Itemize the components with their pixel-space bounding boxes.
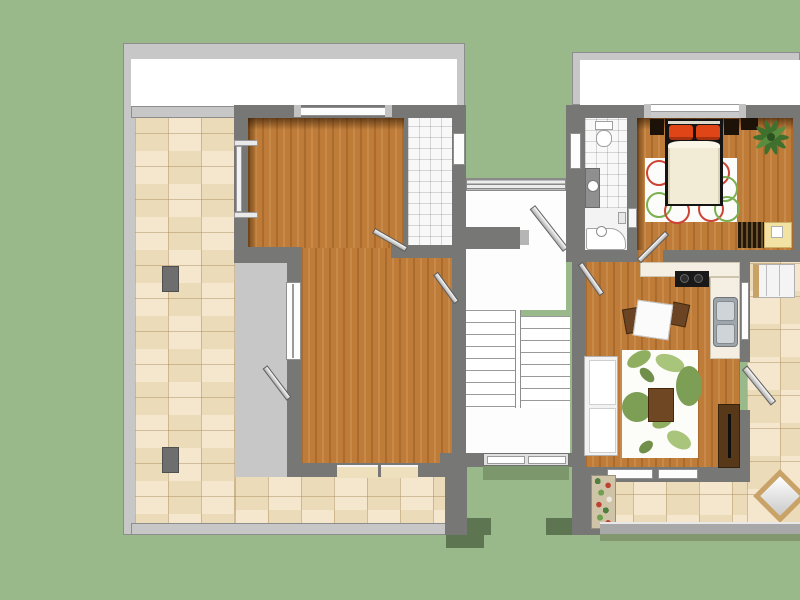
shower-drain [596,226,607,237]
potted-plant [752,120,790,154]
window-frame-cap [739,104,746,118]
floor-shadow [248,118,257,248]
wall-bathroom-right [627,118,637,262]
bedroom-window [650,104,740,112]
wall-bedroom-bottom [578,250,800,262]
lounger-seam [779,265,780,296]
sink-basin [716,324,735,344]
left-main-room-floor [301,248,452,463]
pillow [669,125,693,140]
headboard-trim [668,121,720,124]
lower-landing [466,408,570,453]
bathroom-fixture [618,212,626,224]
window-frame-cap [385,105,392,117]
terrace-parapet-bottom [131,523,450,535]
wall-right-apartment-left [566,105,585,262]
terrace-parapet-right [600,522,800,534]
plant-center [767,133,775,141]
upper-landing [466,191,566,310]
mat-box [771,226,783,238]
wall-bathroom-divider [404,118,408,248]
pillow [696,125,720,140]
wall-stub-cap [520,230,529,245]
duvet [668,148,720,204]
cabinet-item [728,414,731,458]
floor-plan [0,0,800,600]
window-top-room [300,107,386,116]
window-frame-cap [294,105,301,117]
coffee-table [648,388,674,422]
kitchen-window [741,282,749,340]
sun-lounger [753,264,795,298]
left-bathroom-floor [408,118,452,248]
wall-shadow [446,535,484,548]
left-top-room-floor [248,118,405,248]
sofa-cushion [589,408,616,453]
window-sill [234,212,258,218]
washbasin [587,180,599,192]
landing-wall-stub [466,227,520,249]
toilet-bowl [596,130,612,147]
living-window [658,469,698,479]
nightstand-right [724,119,739,135]
radiator [738,222,764,248]
right-roof-band [580,60,800,105]
terrace-pillar [162,447,179,473]
wall-entrance-left [440,453,483,467]
window-left-wall [236,146,242,212]
wall-living-right [740,410,750,467]
floor-shadow [637,118,645,250]
left-roof-band [131,59,457,106]
bridge-railing [466,178,566,191]
window-sill [234,140,258,146]
parapet-shadow [600,534,800,541]
wall-shadow [467,518,491,535]
rug-leaf [676,366,702,406]
entrance-shadow [483,466,569,480]
sink-basin [716,301,735,321]
bedroom-window-sill [650,112,740,118]
burner [680,274,689,283]
terrace-pillar [162,266,179,292]
dining-table [633,300,674,341]
wall-shadow [546,518,572,535]
window-frame-cap [644,104,651,118]
wall-jog [234,247,302,263]
terrace-threshold [337,465,378,478]
terrace-parapet-top [131,106,238,118]
stair-flight-right [521,316,570,408]
nightstand-left [650,119,664,135]
wall-bedroom-right [793,105,800,250]
bathroom-door [628,208,637,228]
terrace-threshold [381,465,418,478]
entrance-door-panel [487,456,525,464]
entrance-door-panel [528,456,566,464]
window-to-stairwell [453,133,465,165]
stair-flight-left [466,310,515,408]
burner [694,274,703,283]
flower-planter [591,475,616,529]
left-terrace-floor [135,118,235,530]
bathroom-window [570,133,581,169]
lounger-seam [766,265,767,296]
sofa-cushion [589,360,616,405]
floor-shadow [248,118,405,130]
toilet-tank [595,121,613,130]
entrance-wall-stub-left [445,467,467,535]
glass-door-mullion [292,284,294,358]
